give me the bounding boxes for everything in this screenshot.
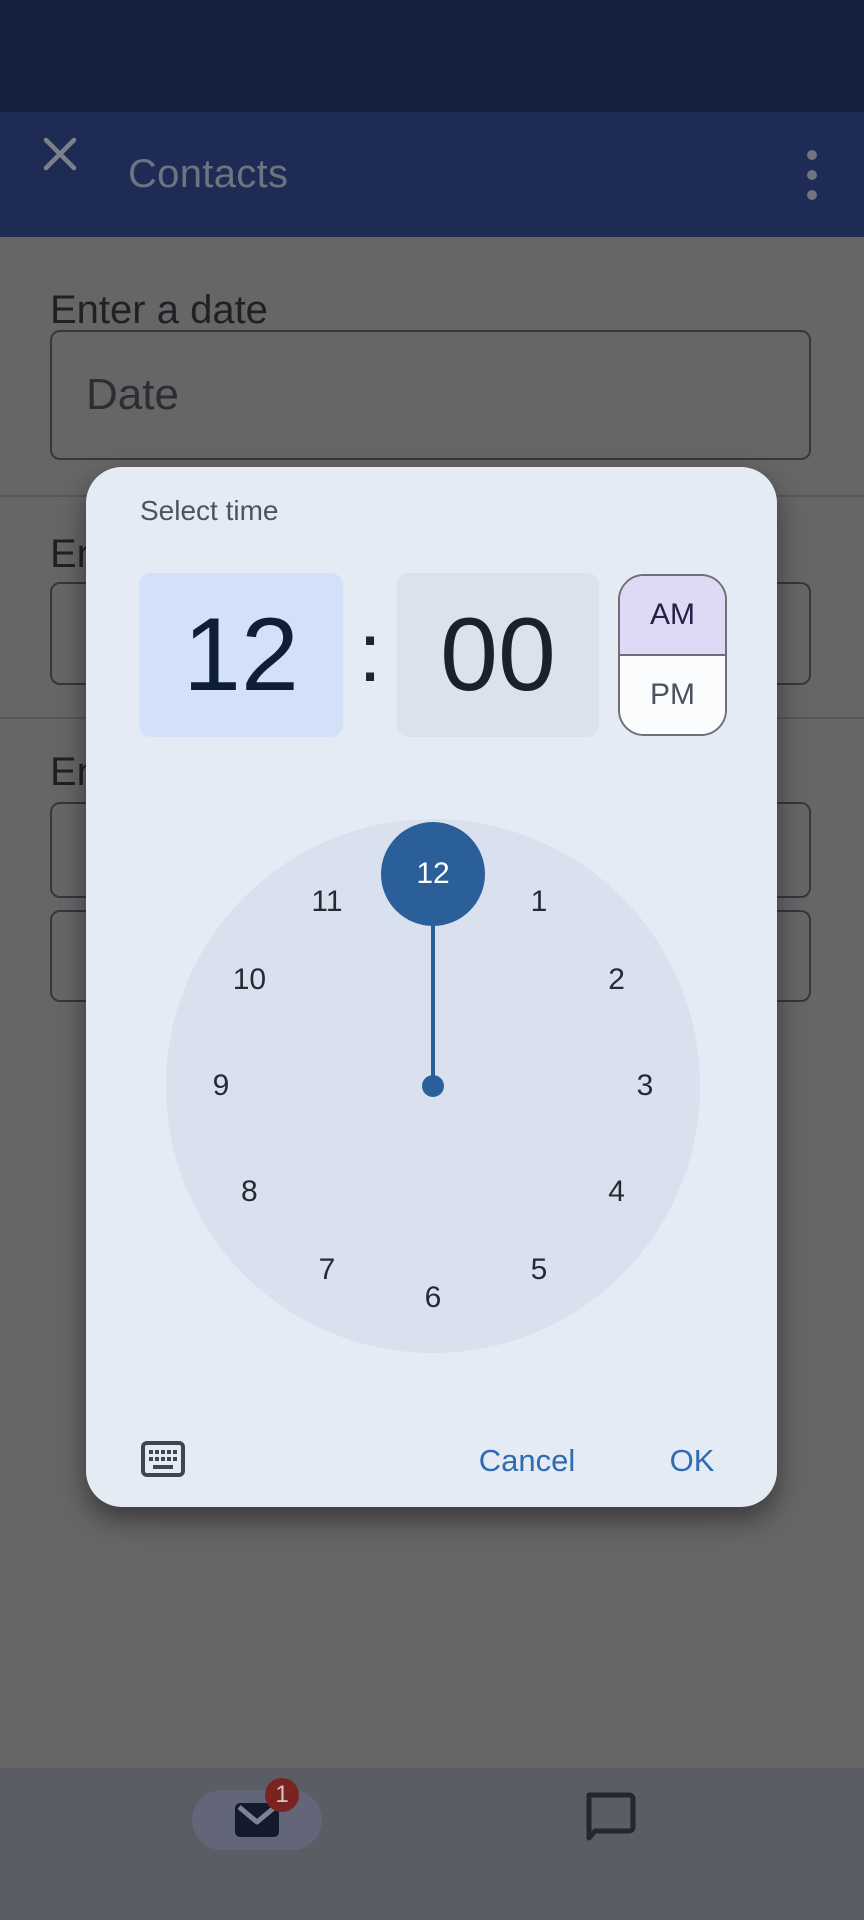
kebab-menu-icon [807,150,817,160]
am-option[interactable]: AM [620,576,725,656]
time-display-row: 12 : 00 AM PM [86,573,777,737]
date-input[interactable]: Date [50,330,811,460]
clock-number-9[interactable]: 9 [191,1056,251,1116]
clock-hand [431,926,435,1086]
dialog-actions: Cancel OK [86,1435,777,1487]
clock-number-11[interactable]: 11 [297,872,357,932]
clock-number-2[interactable]: 2 [587,950,647,1010]
time-separator: : [343,573,397,731]
close-icon [38,132,82,176]
app-bar: Contacts [0,112,864,237]
clock-dial[interactable]: 123456789101112 [166,819,700,1353]
clock-number-7[interactable]: 7 [297,1240,357,1300]
clock-number-6[interactable]: 6 [403,1268,463,1328]
hour-display[interactable]: 12 [139,573,343,737]
cancel-button[interactable]: Cancel [479,1435,576,1487]
clock-number-12[interactable]: 12 [381,822,485,926]
clock-number-3[interactable]: 3 [615,1056,675,1116]
clock-number-4[interactable]: 4 [587,1162,647,1222]
clock-center-dot [422,1075,444,1097]
period-toggle: AM PM [618,574,727,736]
ok-button[interactable]: OK [670,1435,715,1487]
minute-display[interactable]: 00 [397,573,599,737]
keyboard-icon [141,1439,185,1479]
time-picker-dialog: Select time 12 : 00 AM PM 12345678910111… [86,467,777,1507]
clock-number-10[interactable]: 10 [219,950,279,1010]
date-input-placeholder: Date [86,370,179,420]
dialog-title: Select time [140,495,279,527]
nav-chat-tab[interactable] [580,1786,640,1850]
mail-badge: 1 [265,1778,299,1812]
status-bar [0,0,864,112]
close-button[interactable] [38,132,82,176]
overflow-menu-button[interactable] [790,148,834,202]
clock-number-1[interactable]: 1 [509,872,569,932]
clock-number-5[interactable]: 5 [509,1240,569,1300]
chat-icon [580,1786,640,1850]
pm-option[interactable]: PM [620,656,725,734]
screen: Contacts Enter a date Date En En 1 [0,0,864,1920]
bottom-nav-bar: 1 [0,1768,864,1920]
clock-number-8[interactable]: 8 [219,1162,279,1222]
nav-mail-tab[interactable]: 1 [192,1790,322,1850]
keyboard-input-toggle[interactable] [141,1439,185,1479]
date-section-label: Enter a date [50,288,268,333]
page-title: Contacts [128,112,288,237]
